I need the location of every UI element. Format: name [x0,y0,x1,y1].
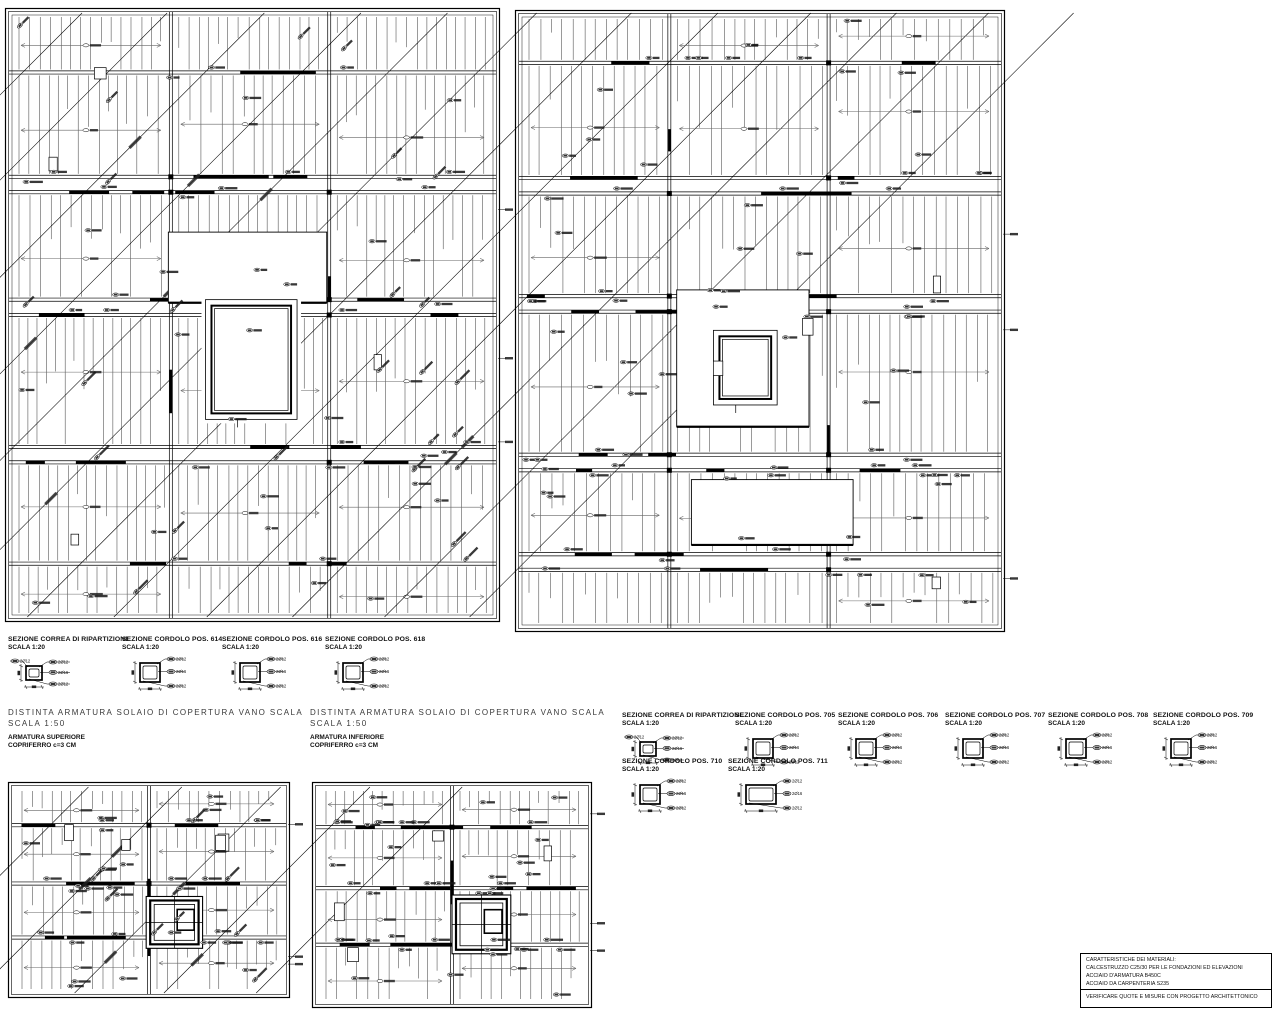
caption-scale: SCALA 1:50 [310,719,610,730]
section-detail: SEZIONE CORREA DI RIPARTIZIONE SCALA 1:2… [8,636,118,705]
materials-specs: CARATTERISTICHE DEI MATERIALI: CALCESTRU… [1081,954,1271,990]
svg-text:2Ø16: 2Ø16 [892,745,903,750]
cordolo-section-svg: 2Ø122Ø162Ø12 [325,654,411,700]
cordolo-section-svg: 2Ø122Ø162Ø12 [622,776,708,822]
caption-upper-reinforcement: DISTINTA ARMATURA SOLAIO DI COPERTURA VA… [8,708,308,750]
section-title: SEZIONE CORDOLO POS. 711 [728,758,838,766]
section-sketch-drawing: 2Ø122Ø162Ø12 [1153,730,1263,781]
section-detail: SEZIONE CORDOLO POS. 618 SCALA 1:20 2Ø12… [325,636,435,705]
svg-text:2Ø16: 2Ø16 [58,670,69,675]
plan-linework [5,8,500,622]
section-scale: SCALA 1:20 [1048,720,1158,728]
section-detail: SEZIONE CORDOLO POS. 616 SCALA 1:20 2Ø12… [222,636,332,705]
svg-text:2Ø12: 2Ø12 [789,733,800,738]
svg-text:2Ø12: 2Ø12 [1207,760,1218,765]
plan-linework [8,782,290,998]
materials-line: ACCIAIO DA CARPENTERIA S235 [1086,981,1266,989]
svg-text:2Ø12: 2Ø12 [892,733,903,738]
plan-linework [515,10,1005,632]
section-detail: SEZIONE CORDOLO POS. 710 SCALA 1:20 2Ø12… [622,758,732,827]
cordolo-section-svg: 2Ø122Ø162Ø12 [1048,730,1134,776]
section-sketch-drawing: 2Ø122Ø162Ø12 [622,776,732,827]
svg-text:2Ø12: 2Ø12 [58,682,69,687]
section-detail: SEZIONE CORDOLO POS. 711 SCALA 1:20 2Ø12… [728,758,838,827]
section-detail: SEZIONE CORDOLO POS. 706 SCALA 1:20 2Ø12… [838,712,948,781]
section-scale: SCALA 1:20 [945,720,1055,728]
svg-text:2Ø12: 2Ø12 [1102,733,1113,738]
section-title: SEZIONE CORDOLO POS. 616 [222,636,332,644]
svg-text:2Ø12: 2Ø12 [1207,733,1218,738]
svg-text:2Ø16: 2Ø16 [999,745,1010,750]
cordolo-section-svg: 2Ø122Ø162Ø12 [1153,730,1239,776]
section-title: SEZIONE CORDOLO POS. 709 [1153,712,1263,720]
svg-text:2Ø16: 2Ø16 [379,669,390,674]
caption-cover: COPRIFERRO c=3 CM [8,742,308,750]
svg-text:2Ø16: 2Ø16 [676,791,687,796]
roof-slab-plan-upper-reinforcement [5,8,500,622]
svg-text:2Ø16: 2Ø16 [672,746,683,751]
section-title: SEZIONE CORDOLO POS. 710 [622,758,732,766]
section-detail: SEZIONE CORDOLO POS. 707 SCALA 1:20 2Ø12… [945,712,1055,781]
caption-lower-reinforcement: DISTINTA ARMATURA SOLAIO DI COPERTURA VA… [310,708,610,750]
stair-slab-plan-lower-reinforcement [312,782,592,1008]
cordolo-section-svg: 2Ø122Ø162Ø12 [122,654,208,700]
section-sketch-drawing: 2Ø122Ø162Ø12 [728,776,838,827]
section-scale: SCALA 1:20 [838,720,948,728]
section-scale: SCALA 1:20 [8,644,118,652]
svg-text:2Ø12: 2Ø12 [176,684,187,689]
materials-line: ACCIAIO D'ARMATURA B450C [1086,973,1266,981]
svg-text:2Ø16: 2Ø16 [1207,745,1218,750]
section-detail: SEZIONE CORDOLO POS. 708 SCALA 1:20 2Ø12… [1048,712,1158,781]
section-title: SEZIONE CORDOLO POS. 705 [735,712,845,720]
cordolo-section-svg: 2Ø122Ø162Ø12 [838,730,924,776]
svg-text:2Ø12: 2Ø12 [676,806,687,811]
svg-text:2Ø12: 2Ø12 [1102,760,1113,765]
cordolo-section-svg: 2Ø122Ø162Ø12 [945,730,1031,776]
section-title: SEZIONE CORDOLO POS. 706 [838,712,948,720]
svg-text:2Ø16: 2Ø16 [176,669,187,674]
section-title: SEZIONE CORREA DI RIPARTIZIONE [622,712,732,720]
section-title: SEZIONE CORDOLO POS. 708 [1048,712,1158,720]
caption-layer: ARMATURA SUPERIORE [8,734,308,742]
materials-line: CALCESTRUZZO C25/30 PER LE FONDAZIONI ED… [1086,965,1266,973]
stair-slab-plan-upper-reinforcement [8,782,290,998]
verification-note: VERIFICARE QUOTE E MISURE CON PROGETTO A… [1081,990,1271,1004]
roof-slab-plan-lower-reinforcement [515,10,1005,632]
svg-text:2Ø12: 2Ø12 [379,684,390,689]
plan-linework [312,782,592,1008]
svg-text:2Ø12: 2Ø12 [276,657,287,662]
materials-line: CARATTERISTICHE DEI MATERIALI: [1086,957,1266,965]
section-scale: SCALA 1:20 [735,720,845,728]
svg-text:2Ø12: 2Ø12 [676,779,687,784]
svg-text:2Ø16: 2Ø16 [1102,745,1113,750]
section-title: SEZIONE CORREA DI RIPARTIZIONE [8,636,118,644]
section-sketch-drawing: 2Ø122Ø162Ø12 [122,654,232,705]
svg-text:2Ø12: 2Ø12 [379,657,390,662]
cordolo-section-svg: 2Ø122Ø162Ø12 [222,654,308,700]
svg-text:2Ø12: 2Ø12 [20,659,31,664]
section-scale: SCALA 1:20 [325,644,435,652]
drawing-sheet: SEZIONE CORREA DI RIPARTIZIONE SCALA 1:2… [0,0,1280,1018]
svg-text:2Ø12: 2Ø12 [276,684,287,689]
section-sketch-drawing: 2Ø122Ø162Ø12 [1048,730,1158,781]
section-detail: SEZIONE CORDOLO POS. 614 SCALA 1:20 2Ø12… [122,636,232,705]
svg-text:2Ø12: 2Ø12 [892,760,903,765]
svg-text:2Ø12: 2Ø12 [792,779,803,784]
section-scale: SCALA 1:20 [122,644,232,652]
svg-text:2Ø16: 2Ø16 [792,791,803,796]
svg-text:2Ø12: 2Ø12 [176,657,187,662]
caption-title: DISTINTA ARMATURA SOLAIO DI COPERTURA VA… [310,708,610,719]
section-scale: SCALA 1:20 [1153,720,1263,728]
section-title: SEZIONE CORDOLO POS. 618 [325,636,435,644]
section-detail: SEZIONE CORDOLO POS. 709 SCALA 1:20 2Ø12… [1153,712,1263,781]
svg-text:2Ø12: 2Ø12 [999,733,1010,738]
cordolo-section-svg: 2Ø122Ø162Ø122Ø12 [8,654,94,700]
svg-text:2Ø12: 2Ø12 [792,806,803,811]
materials-title-block: CARATTERISTICHE DEI MATERIALI: CALCESTRU… [1080,953,1272,1008]
caption-layer: ARMATURA INFERIORE [310,734,610,742]
caption-scale: SCALA 1:50 [8,719,308,730]
section-sketch-drawing: 2Ø122Ø162Ø12 [222,654,332,705]
section-scale: SCALA 1:20 [622,766,732,774]
section-sketch-drawing: 2Ø122Ø162Ø12 [325,654,435,705]
svg-text:2Ø12: 2Ø12 [672,736,683,741]
section-scale: SCALA 1:20 [622,720,732,728]
section-sketch-drawing: 2Ø122Ø162Ø122Ø12 [8,654,118,705]
svg-text:2Ø16: 2Ø16 [276,669,287,674]
section-sketch-drawing: 2Ø122Ø162Ø12 [945,730,1055,781]
section-sketch-drawing: 2Ø122Ø162Ø12 [838,730,948,781]
caption-title: DISTINTA ARMATURA SOLAIO DI COPERTURA VA… [8,708,308,719]
svg-text:2Ø16: 2Ø16 [789,745,800,750]
section-title: SEZIONE CORDOLO POS. 707 [945,712,1055,720]
svg-text:2Ø12: 2Ø12 [58,660,69,665]
section-scale: SCALA 1:20 [728,766,838,774]
svg-text:2Ø12: 2Ø12 [999,760,1010,765]
svg-text:2Ø12: 2Ø12 [634,735,645,740]
section-title: SEZIONE CORDOLO POS. 614 [122,636,232,644]
caption-cover: COPRIFERRO c=3 CM [310,742,610,750]
section-scale: SCALA 1:20 [222,644,332,652]
cordolo-section-svg: 2Ø122Ø162Ø12 [728,776,814,822]
